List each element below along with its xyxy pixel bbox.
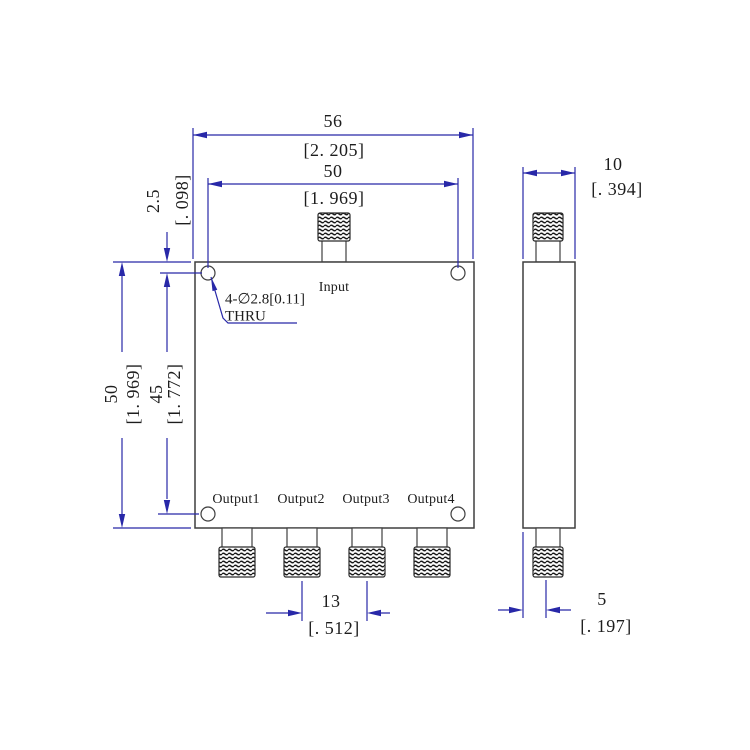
dim-output-pitch-inch: [. 512] [308, 619, 360, 637]
dim-body-height-mm: 50 [102, 385, 120, 404]
dim-output-pitch-mm: 13 [322, 592, 341, 610]
technical-drawing: 56 [2. 205] 50 [1. 969] 2.5 [. 098] 50 [… [0, 0, 750, 750]
input-port-label: Input [319, 281, 350, 295]
dim-side-depth-mm: 10 [604, 155, 623, 173]
mounting-hole-bottom-left [201, 507, 215, 521]
output-connector-4 [414, 528, 450, 577]
output-connector-3 [349, 528, 385, 577]
dimension-hole-top-offset [113, 232, 202, 287]
output4-port-label: Output4 [407, 493, 454, 507]
dim-hole-top-offset-mm: 2.5 [144, 189, 162, 213]
drawing-geometry [0, 0, 750, 750]
output2-port-label: Output2 [277, 493, 324, 507]
hole-note-line2: THRU [225, 310, 266, 325]
output-connector-2 [284, 528, 320, 577]
dim-connector-offset-inch: [. 197] [580, 617, 632, 635]
front-view [195, 213, 474, 577]
dim-connector-offset-mm: 5 [597, 590, 607, 608]
side-bottom-connector [533, 528, 563, 577]
dim-side-depth-inch: [. 394] [591, 180, 643, 198]
input-connector [318, 213, 350, 262]
side-body [523, 262, 575, 528]
dim-body-width-mm: 56 [324, 112, 343, 130]
mounting-hole-top-right [451, 266, 465, 280]
mounting-hole-top-left [201, 266, 215, 280]
dim-hole-span-y-inch: [1. 772] [165, 364, 183, 425]
dim-hole-span-y-mm: 45 [147, 385, 165, 404]
mounting-hole-bottom-right [451, 507, 465, 521]
output3-port-label: Output3 [342, 493, 389, 507]
side-view [523, 213, 575, 577]
dim-hole-top-offset-inch: [. 098] [173, 174, 191, 226]
dim-body-height-inch: [1. 969] [124, 364, 142, 425]
side-top-connector [533, 213, 563, 262]
dim-body-width-inch: [2. 205] [304, 141, 365, 159]
dim-hole-span-x-mm: 50 [324, 162, 343, 180]
output1-port-label: Output1 [212, 493, 259, 507]
dim-hole-span-x-inch: [1. 969] [304, 189, 365, 207]
hole-note-line1: 4-∅2.8[0.11] [225, 293, 305, 308]
output-connector-1 [219, 528, 255, 577]
